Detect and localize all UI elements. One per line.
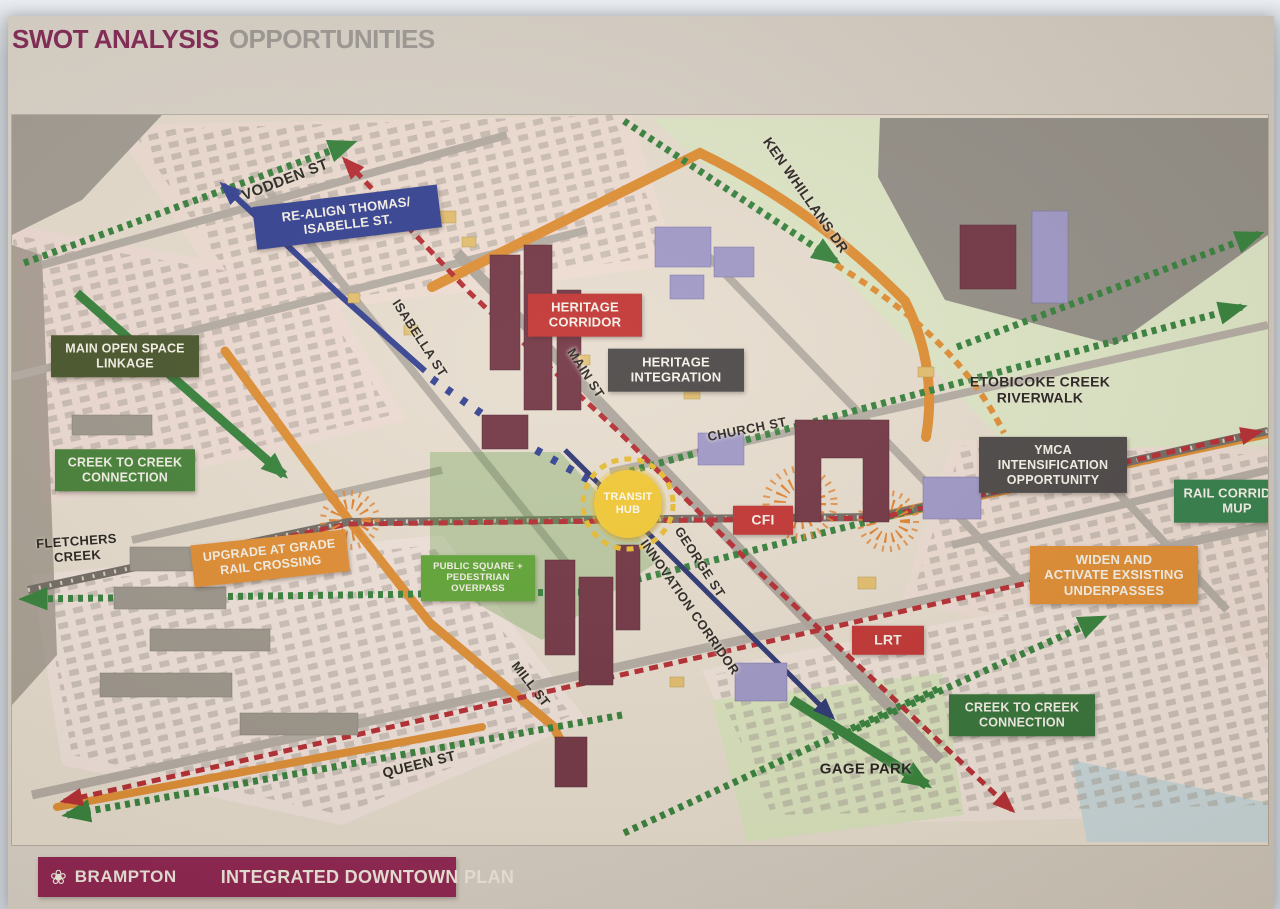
area-label-gage-park: GAGE PARK <box>820 762 912 779</box>
street-label-church-st: CHURCH ST <box>706 414 788 444</box>
street-label-mill-st: MILL ST <box>509 658 554 709</box>
callout-realign-thomas-isabelle: RE-ALIGN THOMAS/ISABELLE ST. <box>252 184 442 249</box>
street-label-isabella-st: ISABELLA ST <box>389 297 450 380</box>
swot-opportunities-poster: SWOT ANALYSISOPPORTUNITIES <box>8 16 1274 909</box>
area-label-fletchers-creek: FLETCHERSCREEK <box>36 532 119 567</box>
callout-rail-corridor-mup: RAIL CORRIDORMUP <box>1174 480 1268 523</box>
footer-brand: BRAMPTON <box>75 867 177 887</box>
photo-of-poster: SWOT ANALYSISOPPORTUNITIES <box>0 0 1280 909</box>
footer-brand-bar: ❀ BRAMPTON INTEGRATED DOWNTOWN PLAN <box>38 857 456 897</box>
callout-widen-activate-underpasses: WIDEN ANDACTIVATE EXSISTINGUNDERPASSES <box>1030 546 1198 604</box>
downtown-plan-map: VODDEN STKEN WHILLANS DRISABELLA STMAIN … <box>12 115 1268 845</box>
callout-heritage-integration: HERITAGEINTEGRATION <box>608 349 744 392</box>
area-label-etobicoke-creek-riverwalk: ETOBICOKE CREEKRIVERWALK <box>970 374 1110 405</box>
callout-ymca-intensification-opportunity: YMCAINTENSIFICATIONOPPORTUNITY <box>979 437 1127 493</box>
callout-upgrade-at-grade-rail-crossing: UPGRADE AT GRADERAIL CROSSING <box>190 529 349 587</box>
page-title: SWOT ANALYSISOPPORTUNITIES <box>12 24 435 55</box>
callout-creek-to-creek-connection-east: CREEK TO CREEKCONNECTION <box>949 694 1095 736</box>
callout-heritage-corridor: HERITAGECORRIDOR <box>528 294 642 337</box>
street-label-vodden-st: VODDEN ST <box>239 156 330 205</box>
callout-transit-hub: TRANSITHUB <box>594 470 662 538</box>
callout-public-square-pedestrian-overpass: PUBLIC SQUARE +PEDESTRIANOVERPASS <box>421 555 535 601</box>
street-label-queen-st: QUEEN ST <box>381 747 457 781</box>
callout-lrt: LRT <box>852 626 924 655</box>
title-opportunities: OPPORTUNITIES <box>229 24 435 54</box>
title-swot-analysis: SWOT ANALYSIS <box>12 24 219 54</box>
callout-creek-to-creek-connection-west: CREEK TO CREEKCONNECTION <box>55 449 195 491</box>
street-label-main-st: MAIN ST <box>564 345 607 400</box>
footer-plan-title: INTEGRATED DOWNTOWN PLAN <box>221 867 515 888</box>
street-label-ken-whillans-dr: KEN WHILLANS DR <box>760 134 852 256</box>
brampton-flower-logo-icon: ❀ <box>50 865 67 890</box>
callout-cfi: CFI <box>733 506 793 535</box>
callout-main-open-space-linkage: MAIN OPEN SPACELINKAGE <box>51 335 199 377</box>
map-overlay: VODDEN STKEN WHILLANS DRISABELLA STMAIN … <box>12 115 1268 845</box>
